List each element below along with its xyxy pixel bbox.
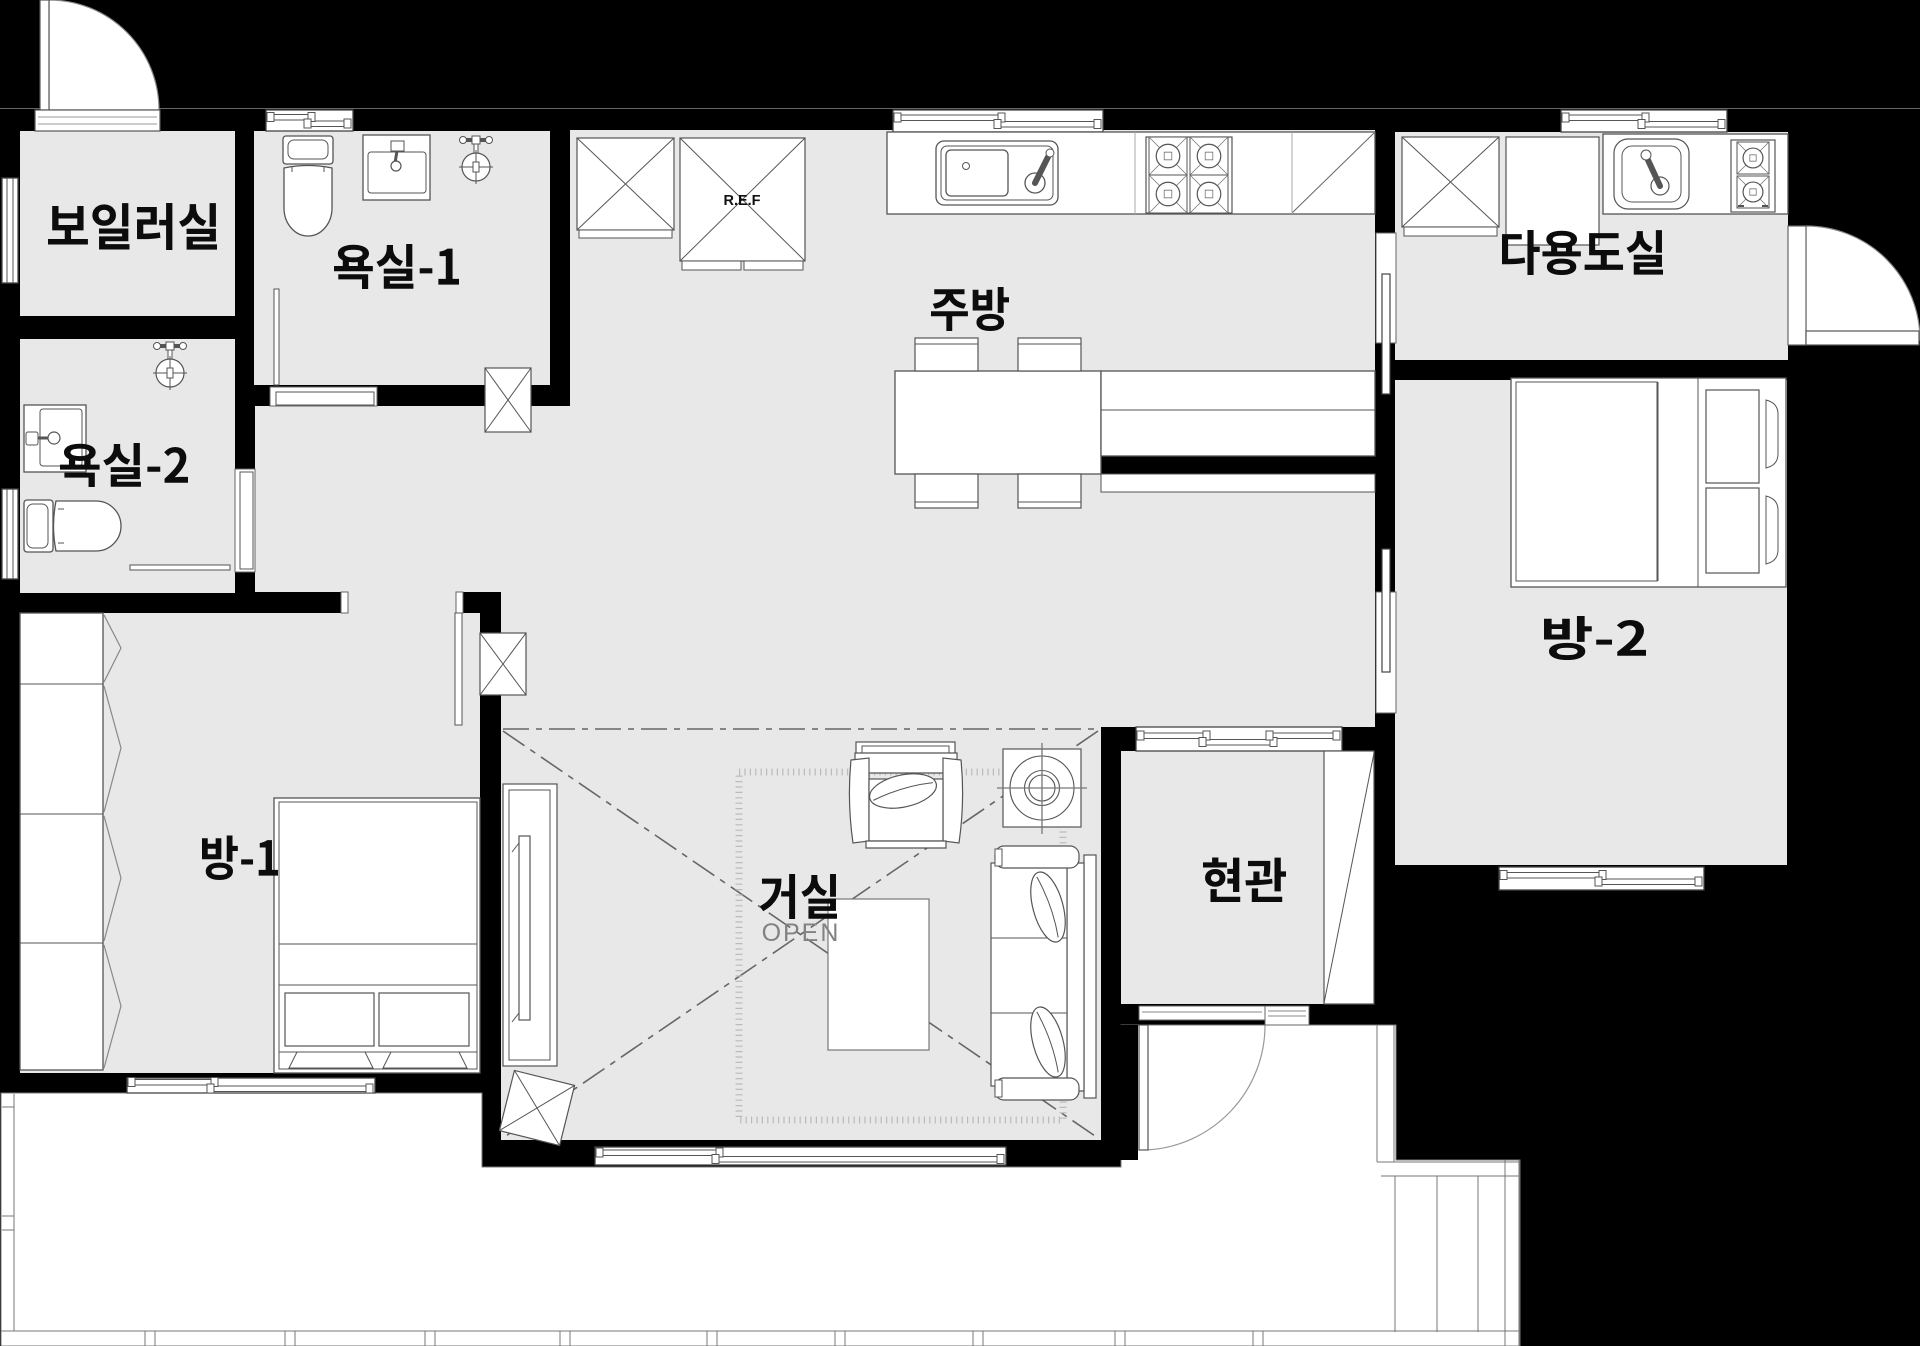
svg-text:R.E.F: R.E.F [723,193,760,209]
svg-text:OPEN: OPEN [762,919,841,947]
